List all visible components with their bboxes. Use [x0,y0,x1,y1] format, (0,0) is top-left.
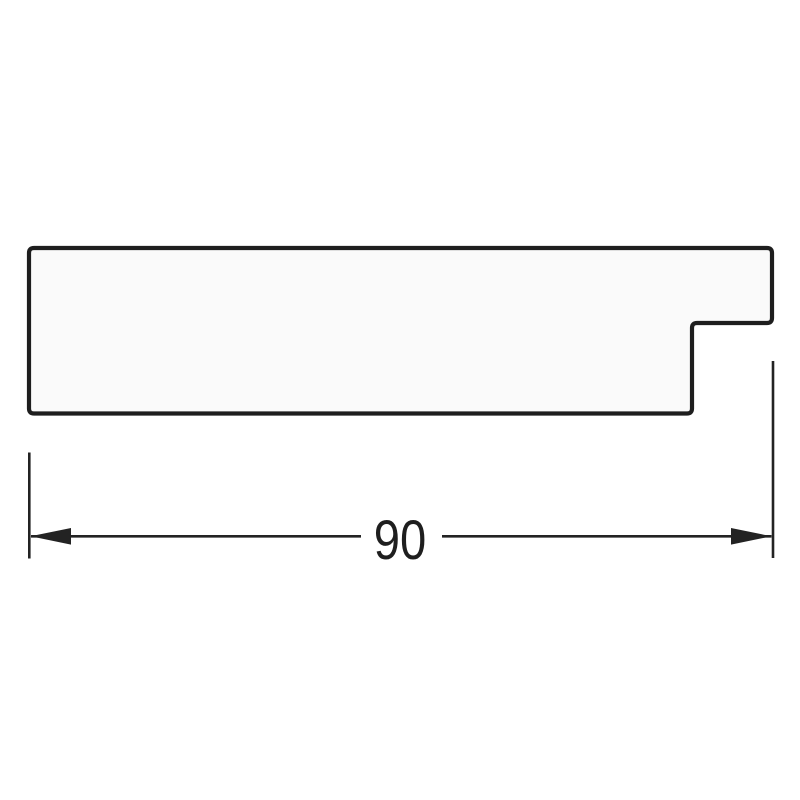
svg-text:90: 90 [374,509,427,571]
